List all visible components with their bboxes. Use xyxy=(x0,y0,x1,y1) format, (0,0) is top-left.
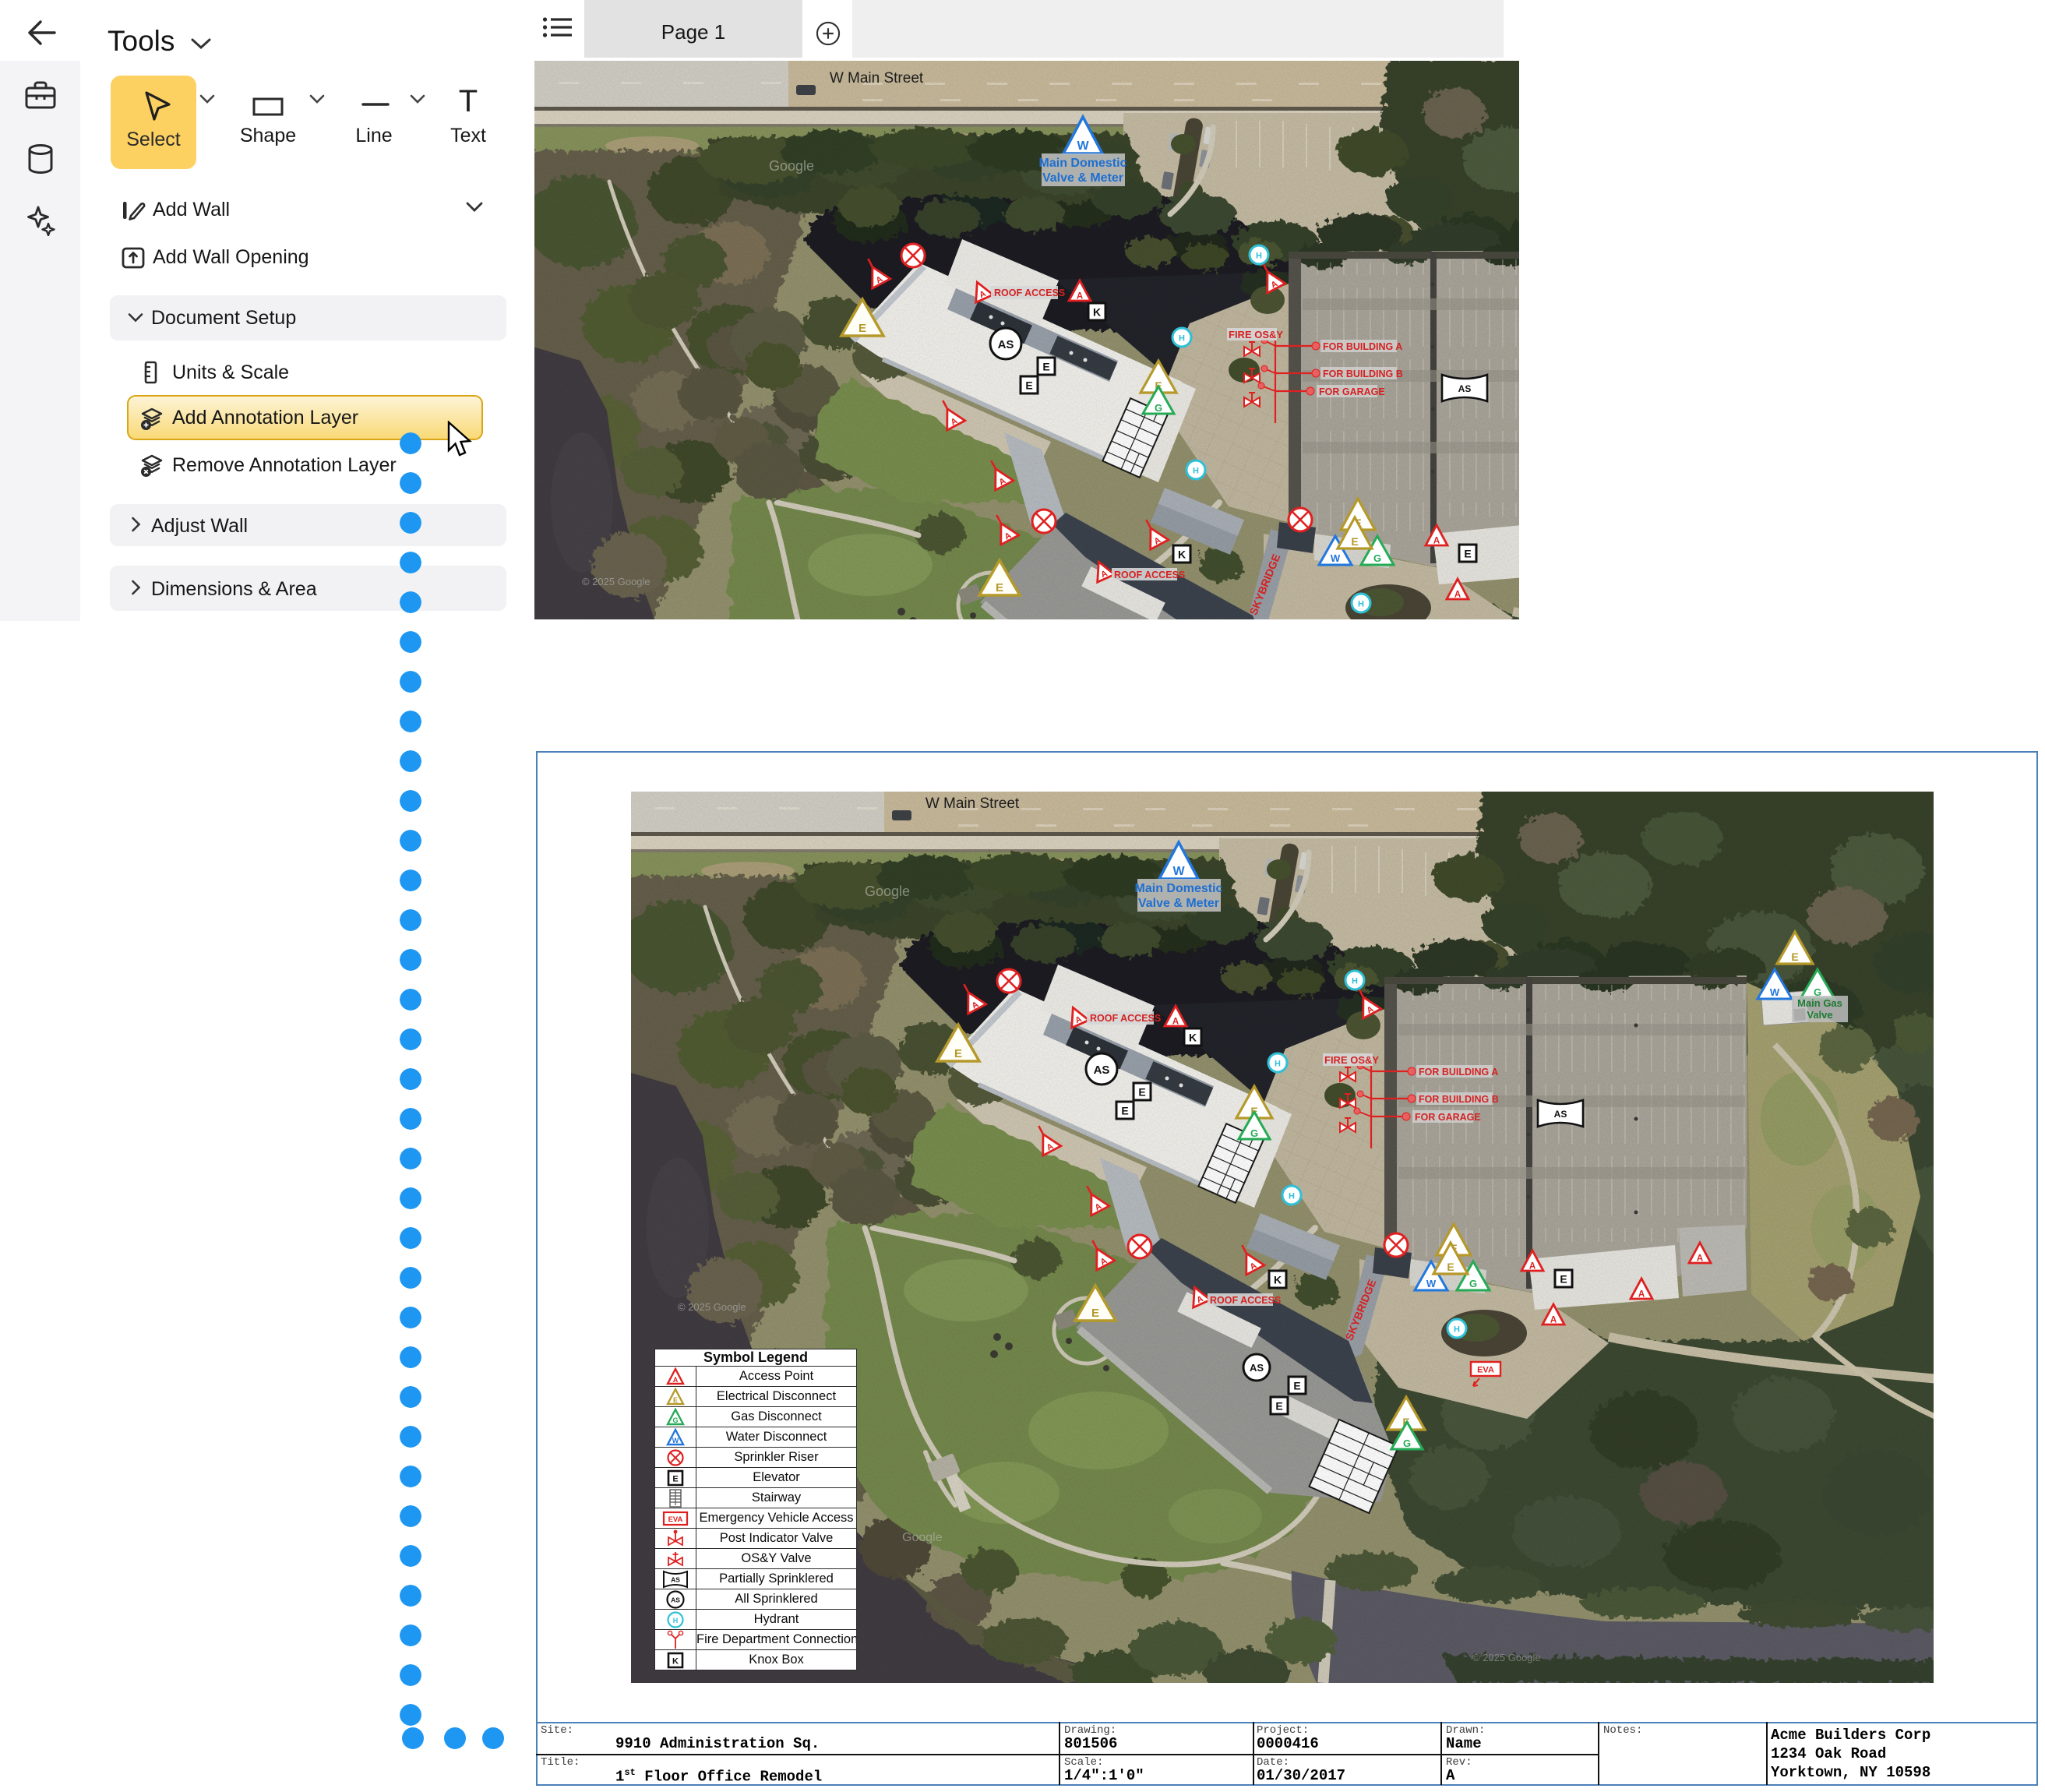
svg-text:E: E xyxy=(673,1396,678,1404)
svg-text:E: E xyxy=(672,1474,678,1483)
svg-text:H: H xyxy=(673,1617,679,1624)
svg-text:G: G xyxy=(672,1416,678,1424)
svg-text:A: A xyxy=(673,1376,679,1384)
svg-text:AS: AS xyxy=(671,1596,680,1603)
svg-text:K: K xyxy=(672,1656,679,1666)
svg-text:AS: AS xyxy=(671,1575,680,1583)
svg-text:W: W xyxy=(672,1437,679,1445)
svg-text:EVA: EVA xyxy=(668,1515,683,1524)
